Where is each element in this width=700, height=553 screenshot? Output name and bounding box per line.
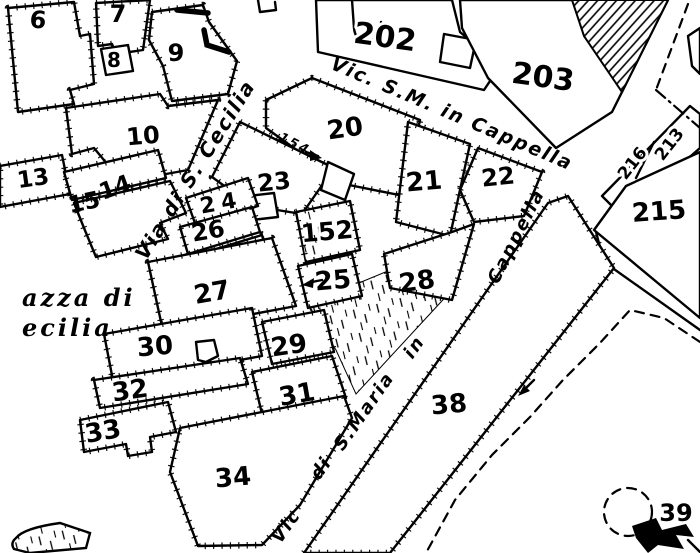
parcel-label-8: 8 bbox=[107, 48, 121, 72]
parcel-label-29: 29 bbox=[269, 329, 309, 364]
parcel-label-215: 215 bbox=[631, 195, 687, 229]
parcel-label-38: 38 bbox=[430, 388, 469, 421]
parcel-label-31: 31 bbox=[277, 377, 318, 413]
cadastral-map-canvas: 6 7 8 9 10 13 14 15 20 21 22 23 24 25 26… bbox=[0, 0, 700, 553]
parcel-label-23: 23 bbox=[256, 166, 292, 197]
parcel-label-39: 39 bbox=[659, 499, 692, 527]
parcel-label-32: 32 bbox=[110, 374, 150, 409]
parcel-label-28: 28 bbox=[397, 265, 437, 300]
parcel-label-20: 20 bbox=[325, 112, 365, 147]
parcel-label-33: 33 bbox=[83, 414, 124, 450]
parcel-label-6: 6 bbox=[28, 5, 47, 34]
cadastral-map-screenshot: 6 7 8 9 10 13 14 15 20 21 22 23 24 25 26… bbox=[0, 0, 700, 553]
parcel-label-10: 10 bbox=[125, 121, 161, 152]
parcel-label-26: 26 bbox=[189, 214, 227, 247]
parcel-6-outline bbox=[8, 2, 94, 112]
bottom-left-fragment bbox=[12, 523, 90, 553]
parcel-label-27: 27 bbox=[192, 275, 233, 311]
piazza-label-line1: azza di bbox=[22, 283, 136, 312]
parcel-30-notch bbox=[196, 340, 218, 362]
parcel-label-34: 34 bbox=[214, 461, 253, 494]
parcel-label-9: 9 bbox=[168, 39, 185, 67]
parcel-label-13: 13 bbox=[15, 164, 50, 194]
parcel-label-25: 25 bbox=[314, 264, 353, 297]
parcel-label-7: 7 bbox=[110, 0, 127, 28]
parcel-label-22: 22 bbox=[480, 161, 516, 192]
parcel-label-30: 30 bbox=[136, 330, 175, 363]
hatched-fragment-right-edge bbox=[688, 28, 700, 74]
piazza-label-line2: ecilia bbox=[22, 313, 113, 342]
parcel-label-152: 152 bbox=[300, 215, 355, 248]
parcel-label-21: 21 bbox=[405, 165, 444, 198]
